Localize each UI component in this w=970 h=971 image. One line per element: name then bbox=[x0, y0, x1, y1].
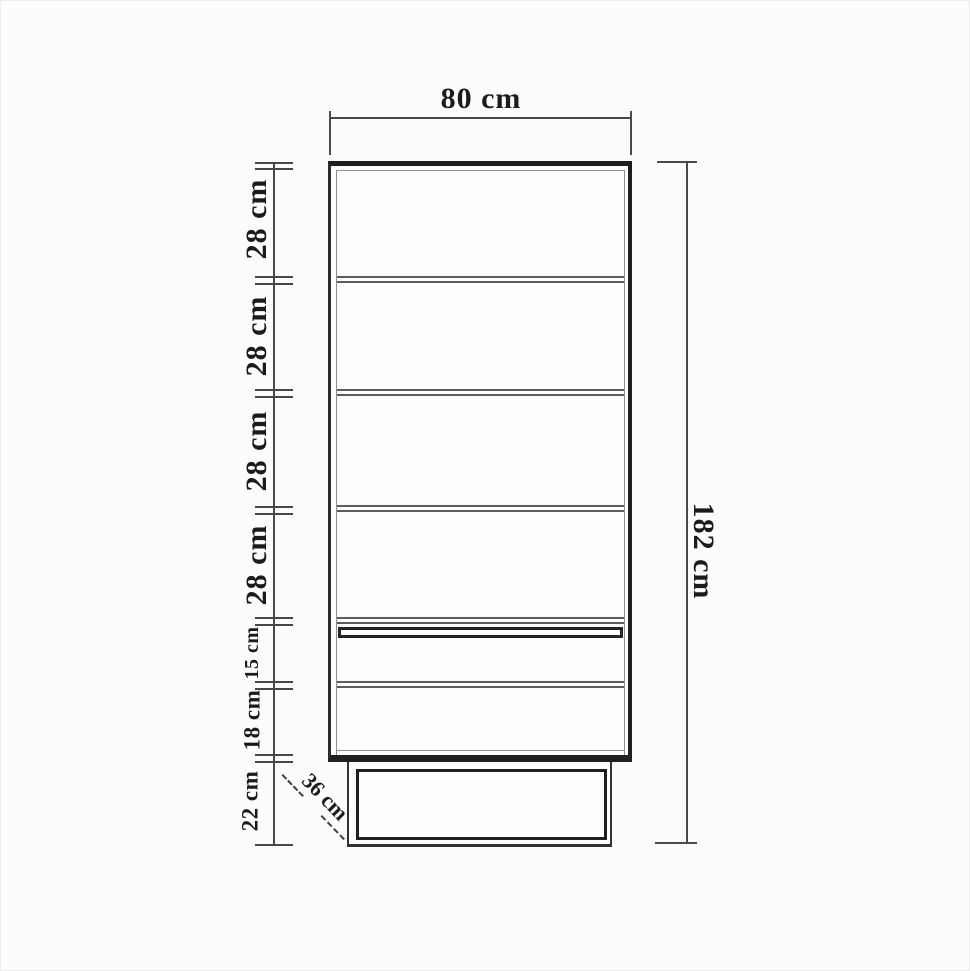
shelf bbox=[337, 617, 624, 624]
tick-mark bbox=[255, 681, 293, 683]
section-label-15cm: 15 cm bbox=[242, 626, 262, 679]
shelf bbox=[337, 276, 624, 283]
section-label-28cm-2: 28 cm bbox=[242, 296, 272, 377]
tick-mark bbox=[255, 162, 293, 164]
dimension-end-tick bbox=[657, 161, 697, 163]
shelf bbox=[337, 505, 624, 512]
section-label-28cm-3: 28 cm bbox=[242, 411, 272, 492]
drawer-divider bbox=[337, 681, 624, 688]
cabinet-inner-liner bbox=[336, 170, 625, 755]
section-label-28cm-4: 28 cm bbox=[242, 525, 272, 606]
height-dimension-label: 182 cm bbox=[688, 503, 718, 600]
section-label-18cm: 18 cm bbox=[241, 690, 264, 751]
base-plinth-panel bbox=[356, 769, 607, 840]
tick-mark bbox=[255, 168, 293, 170]
dimension-line bbox=[273, 163, 275, 845]
tick-mark bbox=[255, 617, 293, 619]
dimension-diagram: 80 cm 182 cm bbox=[0, 0, 970, 971]
tick-mark bbox=[255, 761, 293, 763]
tick-mark bbox=[255, 754, 293, 756]
tick-mark bbox=[255, 276, 293, 278]
tick-mark bbox=[255, 513, 293, 515]
depth-dimension-label: 36 cm bbox=[298, 769, 352, 824]
dimension-line bbox=[330, 117, 632, 119]
shelf bbox=[337, 389, 624, 396]
dimension-end-tick bbox=[630, 111, 632, 155]
tick-mark bbox=[255, 396, 293, 398]
cabinet-bottom-liner bbox=[337, 750, 624, 751]
dimension-end-tick bbox=[329, 111, 331, 155]
tick-mark bbox=[255, 283, 293, 285]
section-label-22cm: 22 cm bbox=[239, 771, 262, 832]
width-dimension-label: 80 cm bbox=[330, 84, 632, 114]
tick-mark bbox=[255, 389, 293, 391]
drawer-front-rail bbox=[338, 627, 623, 638]
tick-mark bbox=[255, 844, 293, 846]
section-label-28cm-1: 28 cm bbox=[242, 179, 272, 260]
dimension-end-tick bbox=[655, 842, 697, 844]
tick-mark bbox=[255, 506, 293, 508]
